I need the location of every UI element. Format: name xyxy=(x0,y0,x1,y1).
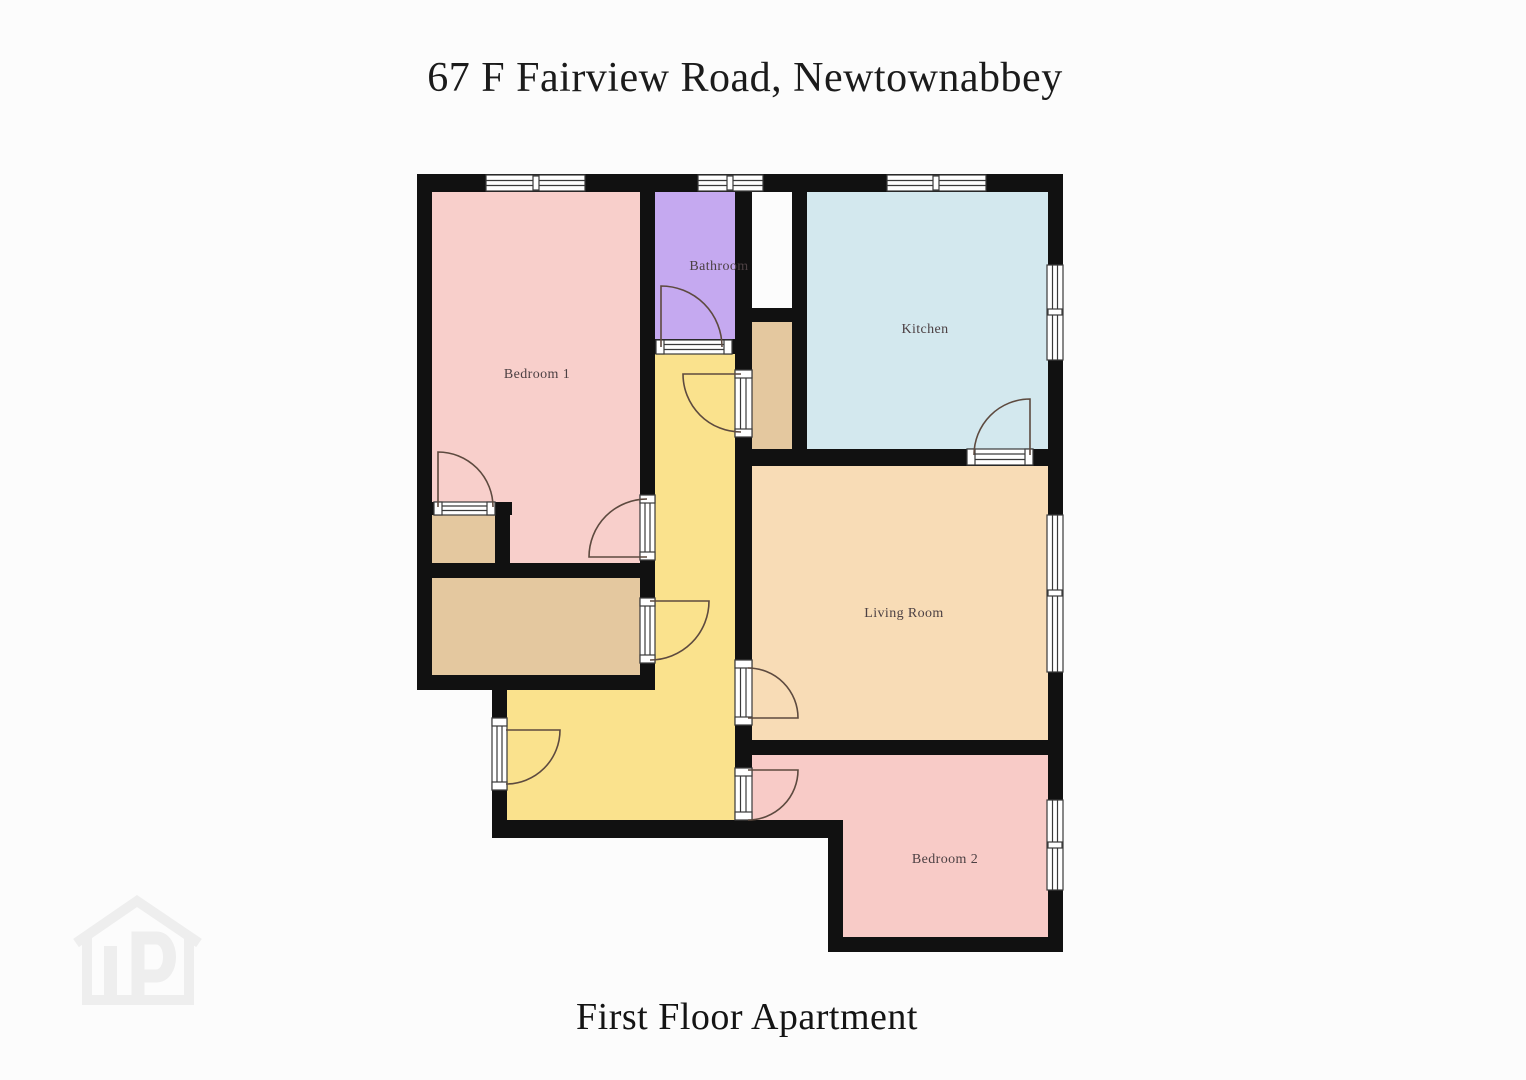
window xyxy=(1047,800,1063,890)
door-frame xyxy=(640,495,655,560)
room-closet xyxy=(425,508,504,570)
room-label-bedroom-1: Bedroom 1 xyxy=(504,367,570,382)
letter-p-icon xyxy=(138,938,170,1000)
wall xyxy=(417,174,432,690)
door-frame xyxy=(492,718,507,790)
room-living xyxy=(745,458,1058,748)
door-frame xyxy=(434,502,495,515)
window xyxy=(887,175,986,191)
wall xyxy=(828,820,843,952)
wall xyxy=(828,937,1063,952)
wall xyxy=(495,502,510,570)
room-bedroom-2 xyxy=(742,748,1058,945)
room-label-kitchen: Kitchen xyxy=(901,322,948,337)
wall xyxy=(417,563,655,578)
room-label-bathroom: Bathroom xyxy=(689,259,748,274)
door-frame xyxy=(656,340,732,354)
window xyxy=(1047,265,1063,360)
window xyxy=(1047,515,1063,672)
wall xyxy=(735,740,1063,755)
door-frame xyxy=(735,660,752,725)
room-label-living-room: Living Room xyxy=(864,606,943,621)
page: 67 F Fairview Road, Newtownabbey xyxy=(0,0,1526,1080)
page-title: 67 F Fairview Road, Newtownabbey xyxy=(0,54,1490,102)
wall xyxy=(735,308,807,322)
room-label-bedroom-2: Bedroom 2 xyxy=(912,852,978,867)
door-frame xyxy=(735,370,752,437)
window xyxy=(698,175,763,191)
wall xyxy=(417,675,655,690)
door-frame xyxy=(967,449,1033,465)
door-frame xyxy=(735,768,752,820)
window xyxy=(486,175,585,191)
house-bar-icon xyxy=(104,946,117,1000)
floor-caption: First Floor Apartment xyxy=(0,995,1494,1039)
door-frame xyxy=(640,598,655,663)
floor-plan: Bedroom 1 Bathroom Kitchen Living Room B… xyxy=(410,165,1070,960)
room-storage xyxy=(425,570,648,683)
wall xyxy=(492,820,843,838)
watermark-logo xyxy=(70,888,205,1006)
